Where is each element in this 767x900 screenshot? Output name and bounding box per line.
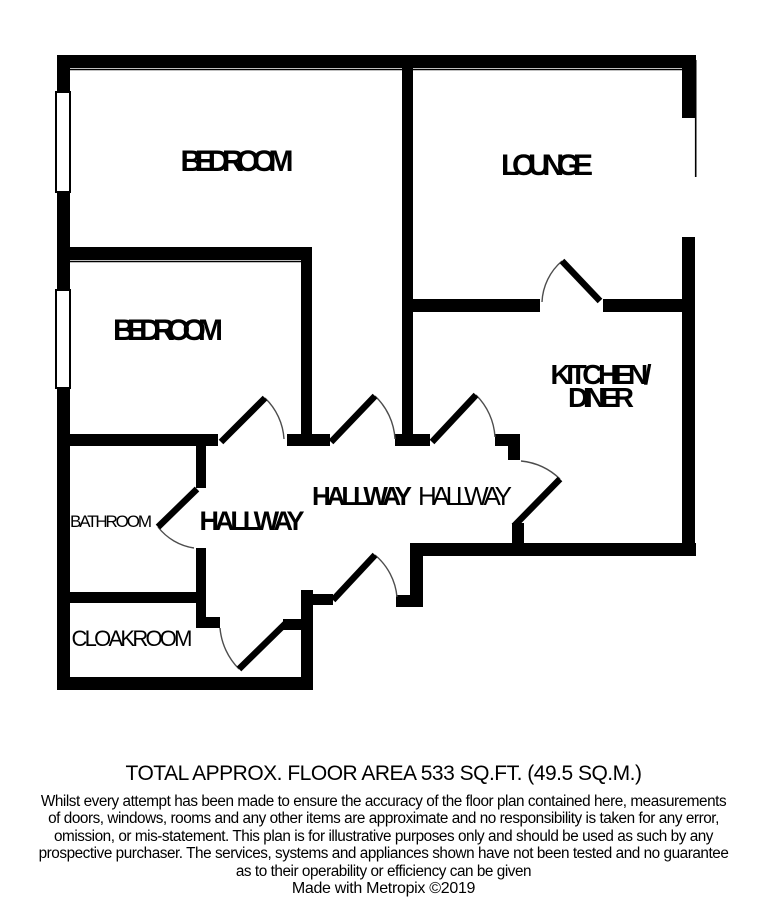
wall-segment — [301, 247, 312, 440]
floorplan-page: BEDROOM LOUNGE BEDROOM KITCHEN/ DINER HA… — [0, 0, 767, 900]
door-panel — [562, 261, 600, 301]
door-arc — [476, 395, 495, 437]
door-arc — [158, 527, 194, 548]
wall-segment — [57, 55, 696, 68]
room-label-bedroom-2: BEDROOM — [113, 314, 223, 347]
wall-segment — [603, 299, 689, 312]
floorplan-drawing: BEDROOM LOUNGE BEDROOM KITCHEN/ DINER HA… — [0, 0, 767, 750]
room-label-hallway-bold-2: HALLWAY — [200, 506, 305, 536]
door-panel — [432, 395, 476, 442]
disclaimer-text: Whilst every attempt has been made to en… — [0, 793, 767, 897]
door-panel — [239, 623, 286, 669]
room-label-kitchen-diner-line2: DINER — [568, 382, 634, 413]
thin-wall-lines — [70, 60, 696, 262]
footer: TOTAL APPROX. FLOOR AREA 533 SQ.FT. (49.… — [0, 762, 767, 897]
wall-segment — [57, 592, 196, 603]
door-arc — [375, 396, 395, 439]
door-panels — [158, 261, 600, 669]
room-label-lounge: LOUNGE — [501, 149, 593, 182]
wall-segment — [196, 548, 206, 628]
total-area-text: TOTAL APPROX. FLOOR AREA 533 SQ.FT. (49.… — [0, 762, 767, 786]
wall-segment — [57, 434, 218, 446]
wall-segment — [396, 595, 423, 607]
door-arc — [521, 461, 560, 479]
wall-segment — [682, 237, 695, 556]
wall-segment — [301, 590, 313, 677]
door-panel — [158, 489, 197, 527]
wall-segment — [57, 247, 312, 260]
wall-segment — [57, 677, 313, 690]
wall-segment — [508, 434, 520, 460]
room-label-cloakroom: CLOAKROOM — [72, 626, 193, 651]
wall-segment — [196, 446, 206, 488]
door-arc — [375, 555, 397, 597]
wall-segment — [410, 543, 696, 556]
metropix-credit: Made with Metropix ©2019 — [0, 880, 767, 897]
wall-segment — [313, 594, 333, 605]
disclaimer-line: of doors, windows, rooms and any other i… — [0, 810, 767, 827]
disclaimer-line: omission, or mis-statement. This plan is… — [0, 828, 767, 845]
door-panel — [514, 479, 560, 526]
disclaimer-line: prospective purchaser. The services, sys… — [0, 845, 767, 862]
door-panel — [221, 398, 265, 442]
wall-segment — [402, 312, 413, 446]
room-label-bathroom: BATHROOM — [70, 512, 152, 531]
disclaimer-line: as to their operability or efficiency ca… — [0, 863, 767, 880]
door-panel — [333, 555, 375, 600]
room-label-hallway-regular: HALLWAY — [418, 481, 512, 511]
wall-segment — [682, 55, 695, 118]
wall-segment — [287, 434, 330, 446]
room-label-hallway-bold-1: HALLWAY — [312, 481, 412, 511]
disclaimer-line: Whilst every attempt has been made to en… — [0, 793, 767, 810]
room-label-bedroom-1: BEDROOM — [181, 145, 294, 178]
wall-segment — [196, 617, 220, 628]
wall-segment — [402, 62, 413, 312]
wall-segment — [402, 299, 540, 312]
window — [56, 290, 70, 388]
window — [56, 92, 70, 192]
door-arc — [265, 398, 284, 439]
door-panel — [331, 396, 375, 442]
door-arc — [220, 628, 239, 669]
door-arc — [542, 261, 562, 302]
